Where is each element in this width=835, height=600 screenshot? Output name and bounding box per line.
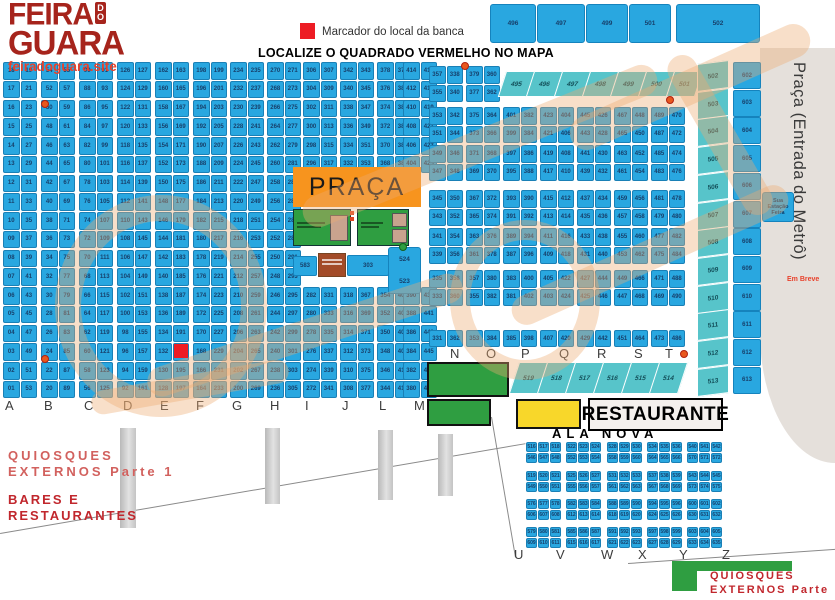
stall-cell[interactable]: 216 <box>230 231 247 249</box>
stall-cell[interactable]: 541 <box>699 442 710 452</box>
stall-cell[interactable]: 227 <box>211 325 228 343</box>
stall-cell[interactable]: 577 <box>538 499 549 509</box>
stall-cell[interactable]: 159 <box>135 362 152 380</box>
stall-cell[interactable]: 565 <box>659 453 670 463</box>
stall-cell[interactable]: 605 <box>711 527 722 537</box>
stall-cell[interactable]: 08 <box>3 250 20 268</box>
stall-cell[interactable]: 341 <box>321 381 338 399</box>
stall-cell[interactable]: 339 <box>321 362 338 380</box>
stall-cell[interactable]: 353 <box>466 330 483 347</box>
stall-cell[interactable]: 16 <box>3 100 20 118</box>
stall-cell[interactable]: 513 <box>697 365 729 397</box>
stall-cell[interactable]: 276 <box>303 343 320 361</box>
stall-cell[interactable]: 98 <box>117 325 134 343</box>
stall-cell[interactable]: 157 <box>135 343 152 361</box>
stall-cell[interactable]: 615 <box>566 538 577 548</box>
stall-cell[interactable]: 258 <box>267 175 284 193</box>
stall-cell[interactable]: 414 <box>558 209 575 227</box>
stall-cell[interactable]: 03 <box>3 343 20 361</box>
stall-cell[interactable]: 114 <box>117 175 134 193</box>
stall-cell[interactable]: 410 <box>403 100 420 118</box>
stall-cell[interactable]: 451 <box>614 330 631 347</box>
stall-cell[interactable]: 386 <box>521 145 538 163</box>
stall-cell[interactable]: 505 <box>697 143 729 175</box>
stall-cell[interactable]: 406 <box>403 137 420 155</box>
stall-cell[interactable]: 468 <box>632 289 649 307</box>
stall-cell[interactable]: 180 <box>193 231 210 249</box>
stall-cell[interactable]: 601 <box>699 499 710 509</box>
stall-cell[interactable]: 263 <box>248 325 265 343</box>
stall-cell[interactable]: 611 <box>733 311 761 338</box>
stall-cell[interactable]: 351 <box>429 126 446 144</box>
stall-cell[interactable]: 152 <box>155 156 172 174</box>
stall-cell[interactable]: 412 <box>558 190 575 208</box>
stall-cell[interactable]: 199 <box>211 62 228 80</box>
stall-cell[interactable]: 368 <box>484 145 501 163</box>
stall-cell[interactable]: 584 <box>590 499 601 509</box>
stall-cell[interactable]: 343 <box>429 209 446 227</box>
stall-cell[interactable]: 299 <box>285 325 302 343</box>
stall-cell[interactable]: 64 <box>79 306 96 324</box>
stall-cell[interactable]: 207 <box>211 137 228 155</box>
stall-cell[interactable]: 490 <box>669 289 686 307</box>
stall-cell[interactable]: 235 <box>248 62 265 80</box>
stall-cell[interactable]: 200 <box>230 381 247 399</box>
stall-cell[interactable]: 400 <box>521 270 538 288</box>
stall-cell[interactable]: 376 <box>377 81 394 99</box>
stall-cell[interactable]: 111 <box>97 250 114 268</box>
stall-cell[interactable]: 441 <box>577 145 594 163</box>
stall-cell[interactable]: 68 <box>79 268 96 286</box>
stall-cell[interactable]: 478 <box>669 190 686 208</box>
stall-cell[interactable]: 382 <box>484 289 501 307</box>
stall-cell[interactable]: 628 <box>659 538 670 548</box>
stall-cell[interactable]: 65 <box>59 156 76 174</box>
stall-cell[interactable]: 138 <box>155 287 172 305</box>
stall-cell[interactable]: 539 <box>671 471 682 481</box>
stall-cell[interactable]: 351 <box>358 137 375 155</box>
stall-cell[interactable]: 25 <box>21 118 38 136</box>
stall-cell[interactable]: 558 <box>607 453 618 463</box>
stall-cell[interactable]: 277 <box>285 118 302 136</box>
stall-cell[interactable]: 144 <box>155 231 172 249</box>
stall-cell[interactable]: 602 <box>733 62 761 89</box>
stall-cell[interactable]: 474 <box>669 145 686 163</box>
stall-cell[interactable]: 46 <box>41 137 58 155</box>
stall-cell[interactable]: 409 <box>540 247 557 265</box>
stall-cell[interactable]: 519 <box>526 471 537 481</box>
stall-cell[interactable]: 634 <box>699 538 710 548</box>
stall-cell[interactable]: 145 <box>135 231 152 249</box>
stall-cell[interactable]: 566 <box>671 453 682 463</box>
stall-cell[interactable]: 440 <box>595 247 612 265</box>
stall-cell[interactable]: 229 <box>211 343 228 361</box>
stall-cell[interactable]: 189 <box>173 306 190 324</box>
stall-cell[interactable]: 437 <box>577 190 594 208</box>
stall-cell[interactable]: 357 <box>466 270 483 288</box>
stall-cell[interactable]: 408 <box>558 145 575 163</box>
stall-cell[interactable]: 609 <box>526 538 537 548</box>
stall-cell[interactable]: 591 <box>607 527 618 537</box>
stall-cell[interactable]: 473 <box>651 330 668 347</box>
stall-cell[interactable]: 483 <box>651 164 668 182</box>
stall-cell[interactable]: 208 <box>230 306 247 324</box>
stall-cell[interactable]: 125 <box>97 381 114 399</box>
stall-cell[interactable]: 75 <box>59 250 76 268</box>
stall-cell[interactable]: 185 <box>173 268 190 286</box>
stall-cell[interactable]: 164 <box>193 381 210 399</box>
stall-cell[interactable]: 624 <box>647 510 658 520</box>
stall-cell[interactable]: 613 <box>733 367 761 394</box>
stall-cell[interactable]: 82 <box>79 137 96 155</box>
stall-cell[interactable]: 49 <box>21 343 38 361</box>
stall-cell[interactable]: 308 <box>340 381 357 399</box>
stall-cell[interactable]: 397 <box>503 145 520 163</box>
stall-cell[interactable]: 552 <box>566 453 577 463</box>
stall-cell[interactable]: 107 <box>97 212 114 230</box>
stall-cell[interactable]: 301 <box>285 343 302 361</box>
stall-cell[interactable]: 195 <box>173 362 190 380</box>
stall-cell[interactable]: 07 <box>3 268 20 286</box>
stall-cell[interactable]: 304 <box>303 81 320 99</box>
stall-cell[interactable]: 605 <box>733 145 761 172</box>
stall-cell[interactable]: 113 <box>97 268 114 286</box>
stall-cell[interactable]: 307 <box>321 62 338 80</box>
stall-cell[interactable]: 596 <box>671 499 682 509</box>
stall-cell[interactable]: 607 <box>538 510 549 520</box>
stall-cell[interactable]: 349 <box>429 145 446 163</box>
stall-cell[interactable]: 575 <box>711 482 722 492</box>
stall-cell[interactable]: 394 <box>521 228 538 246</box>
stall-cell[interactable]: 297 <box>285 306 302 324</box>
stall-cell[interactable]: 149 <box>135 268 152 286</box>
stall-cell[interactable]: 390 <box>521 190 538 208</box>
stall-cell[interactable]: 408 <box>403 118 420 136</box>
stall-cell[interactable]: 608 <box>550 510 561 520</box>
stall-cell[interactable]: 600 <box>687 499 698 509</box>
stall-cell[interactable]: 178 <box>193 250 210 268</box>
stall-cell[interactable]: 346 <box>447 145 464 163</box>
stall-cell[interactable]: 352 <box>377 306 394 324</box>
stall-cell[interactable]: 300 <box>303 118 320 136</box>
stall-cell[interactable]: 100 <box>117 306 134 324</box>
stall-cell[interactable]: 382 <box>403 362 420 380</box>
stall-cell[interactable]: 470 <box>669 107 686 125</box>
stall-cell[interactable]: 580 <box>538 527 549 537</box>
stall-cell[interactable]: 160 <box>155 81 172 99</box>
stall-cell[interactable]: 385 <box>503 330 520 347</box>
stall-cell[interactable]: 295 <box>285 287 302 305</box>
stall-cell[interactable]: 236 <box>267 381 284 399</box>
stall-cell[interactable]: 367 <box>358 287 375 305</box>
stall-cell[interactable]: 384 <box>484 330 501 347</box>
stall-cell[interactable]: 338 <box>340 100 357 118</box>
stall-cell[interactable]: 154 <box>155 137 172 155</box>
stall-cell[interactable]: 69 <box>59 193 76 211</box>
stall-cell[interactable]: 33 <box>21 193 38 211</box>
stall-cell[interactable]: 310 <box>340 362 357 380</box>
stall-cell[interactable]: 431 <box>577 247 594 265</box>
stall-cell[interactable]: 233 <box>211 381 228 399</box>
stall-cell[interactable]: 551 <box>550 482 561 492</box>
stall-cell[interactable]: 188 <box>193 156 210 174</box>
stall-cell[interactable]: 386 <box>403 325 420 343</box>
stall-cell[interactable]: 543 <box>687 471 698 481</box>
stall-cell[interactable]: 224 <box>230 156 247 174</box>
stall-cell[interactable]: 465 <box>614 126 631 144</box>
stall-cell[interactable]: 508 <box>697 226 729 258</box>
stall-cell[interactable]: 458 <box>632 209 649 227</box>
stall-cell[interactable]: 36 <box>41 231 58 249</box>
stall-cell[interactable]: 197 <box>173 381 190 399</box>
stall-cell[interactable]: 529 <box>619 442 630 452</box>
stall-cell[interactable]: 582 <box>566 499 577 509</box>
stall-cell[interactable]: 378 <box>484 247 501 265</box>
stall-cell[interactable]: 81 <box>59 306 76 324</box>
stall-cell[interactable]: 89 <box>59 381 76 399</box>
stall-cell[interactable]: 198 <box>193 62 210 80</box>
stall-cell[interactable]: 395 <box>503 164 520 182</box>
stall-cell[interactable]: 487 <box>651 126 668 144</box>
stall-cell[interactable]: 562 <box>619 482 630 492</box>
stall-cell[interactable]: 342 <box>340 62 357 80</box>
stall-cell[interactable]: 353 <box>429 107 446 125</box>
stall-cell[interactable]: 417 <box>540 164 557 182</box>
stall-cell[interactable]: 616 <box>578 538 589 548</box>
stall-cell[interactable]: 425 <box>577 289 594 307</box>
stall-cell[interactable]: 250 <box>267 250 284 268</box>
stall-cell[interactable]: 371 <box>466 145 483 163</box>
stall-cell[interactable]: 196 <box>193 81 210 99</box>
stall-cell[interactable]: 635 <box>711 538 722 548</box>
stall-cell[interactable]: 223 <box>211 287 228 305</box>
stall-cell[interactable]: 561 <box>607 482 618 492</box>
stall-cell[interactable]: 365 <box>466 209 483 227</box>
stall-cell[interactable]: 217 <box>211 231 228 249</box>
stall-cell[interactable]: 550 <box>538 482 549 492</box>
stall-cell[interactable]: 434 <box>595 190 612 208</box>
stall-cell[interactable]: 333 <box>429 289 446 307</box>
stall-cell[interactable]: 31 <box>21 175 38 193</box>
stall-cell[interactable]: 124 <box>117 81 134 99</box>
stall-cell[interactable]: 534 <box>647 442 658 452</box>
stall-cell[interactable]: 590 <box>631 499 642 509</box>
stall-cell[interactable]: 535 <box>659 442 670 452</box>
stall-cell[interactable]: 597 <box>647 527 658 537</box>
stall-cell[interactable]: 218 <box>230 212 247 230</box>
stall-cell[interactable]: 471 <box>651 270 668 288</box>
stall-cell[interactable]: 246 <box>267 287 284 305</box>
stall-cell[interactable]: 150 <box>155 175 172 193</box>
stall-cell[interactable]: 110 <box>117 212 134 230</box>
stall-cell[interactable]: 435 <box>577 209 594 227</box>
stall-cell[interactable]: 272 <box>303 381 320 399</box>
stall-cell[interactable]: 585 <box>566 527 577 537</box>
stall-cell[interactable]: 314 <box>340 325 357 343</box>
stall-cell[interactable]: 28 <box>41 306 58 324</box>
stall-cell[interactable]: 146 <box>155 212 172 230</box>
stall-cell[interactable]: 350 <box>377 325 394 343</box>
stall-cell[interactable]: 350 <box>447 190 464 208</box>
stall-cell[interactable]: 430 <box>595 145 612 163</box>
stall-cell[interactable]: 559 <box>619 453 630 463</box>
stall-cell[interactable]: 411 <box>540 228 557 246</box>
stall-cell[interactable]: 357 <box>429 66 446 84</box>
stall-cell[interactable]: 344 <box>447 126 464 144</box>
stall-cell[interactable]: 40 <box>41 193 58 211</box>
stall-cell[interactable]: 599 <box>671 527 682 537</box>
stall-cell[interactable]: 521 <box>550 471 561 481</box>
stall-cell[interactable]: 433 <box>577 228 594 246</box>
stall-cell[interactable]: 469 <box>651 289 668 307</box>
stall-cell[interactable]: 528 <box>607 442 618 452</box>
stall-cell[interactable]: 15 <box>3 118 20 136</box>
stall-cell[interactable]: 432 <box>595 164 612 182</box>
stall-cell[interactable]: 260 <box>267 156 284 174</box>
stall-cell[interactable]: 106 <box>117 250 134 268</box>
stall-cell[interactable]: 459 <box>614 190 631 208</box>
stall-cell[interactable]: 179 <box>173 212 190 230</box>
stall-cell[interactable]: 523 <box>578 442 589 452</box>
stall-cell[interactable]: 384 <box>403 343 420 361</box>
stall-cell[interactable]: 161 <box>135 381 152 399</box>
stall-cell[interactable]: 248 <box>267 268 284 286</box>
stall-cell[interactable]: 77 <box>59 268 76 286</box>
stall-cell[interactable]: 56 <box>79 381 96 399</box>
stall-cell[interactable]: 211 <box>211 175 228 193</box>
stall-cell[interactable]: 516 <box>526 442 537 452</box>
stall-cell[interactable]: 456 <box>632 190 649 208</box>
stall-cell[interactable]: 525 <box>566 471 577 481</box>
stall-cell[interactable]: 617 <box>590 538 601 548</box>
stall-cell[interactable]: 372 <box>377 118 394 136</box>
stall-cell[interactable]: 04 <box>3 325 20 343</box>
stall-cell[interactable]: 482 <box>669 228 686 246</box>
stall-cell[interactable]: 462 <box>632 247 649 265</box>
stall-cell[interactable]: 455 <box>614 228 631 246</box>
stall-cell[interactable]: 463 <box>614 145 631 163</box>
stall-cell[interactable]: 419 <box>540 145 557 163</box>
stall-cell[interactable]: 203 <box>211 100 228 118</box>
stall-cell[interactable]: 619 <box>619 510 630 520</box>
stall-cell[interactable]: 414 <box>403 62 420 80</box>
stall-cell[interactable]: 589 <box>619 499 630 509</box>
stall-cell[interactable]: 241 <box>248 118 265 136</box>
stall-cell[interactable]: 109 <box>97 231 114 249</box>
stall-cell[interactable]: 607 <box>733 201 761 228</box>
stall-cell[interactable]: 172 <box>193 306 210 324</box>
stall-cell[interactable]: 37 <box>21 231 38 249</box>
stall-cell[interactable]: 132 <box>155 343 172 361</box>
stall-cell[interactable]: 361 <box>466 247 483 265</box>
stall-cell[interactable]: 29 <box>21 156 38 174</box>
stall-cell[interactable]: 38 <box>41 212 58 230</box>
stall-cell[interactable]: 429 <box>577 330 594 347</box>
stall-cell[interactable]: 360 <box>447 289 464 307</box>
stall-cell[interactable]: 573 <box>687 482 698 492</box>
stall-cell[interactable]: 542 <box>711 442 722 452</box>
stall-cell[interactable]: 362 <box>447 330 464 347</box>
stall-cell[interactable]: 73 <box>59 231 76 249</box>
stall-cell[interactable]: 249 <box>248 193 265 211</box>
stall-cell[interactable]: 448 <box>632 107 649 125</box>
stall-cell[interactable]: 374 <box>484 209 501 227</box>
stall-cell[interactable]: 222 <box>230 175 247 193</box>
stall-cell[interactable]: 105 <box>97 193 114 211</box>
stall-cell[interactable]: 133 <box>135 118 152 136</box>
stall-cell[interactable]: 518 <box>550 442 561 452</box>
stall-cell[interactable]: 170 <box>193 325 210 343</box>
stall-cell[interactable]: 389 <box>503 228 520 246</box>
stall-cell[interactable]: 349 <box>358 118 375 136</box>
stall-cell[interactable]: 334 <box>340 137 357 155</box>
stall-cell[interactable]: 598 <box>659 527 670 537</box>
stall-cell[interactable]: 61 <box>59 118 76 136</box>
stall-cell[interactable]: 531 <box>607 471 618 481</box>
stall-cell[interactable]: 444 <box>595 270 612 288</box>
stall-cell[interactable]: 502 <box>676 4 760 43</box>
stall-cell[interactable]: 344 <box>377 381 394 399</box>
stall-cell[interactable]: 614 <box>590 510 601 520</box>
stall-cell[interactable]: 376 <box>484 228 501 246</box>
stall-cell[interactable]: 348 <box>377 343 394 361</box>
stall-cell[interactable]: 30 <box>41 287 58 305</box>
stall-cell[interactable]: 620 <box>631 510 642 520</box>
stall-cell[interactable]: 112 <box>117 193 134 211</box>
stall-cell[interactable]: 169 <box>173 118 190 136</box>
stall-cell[interactable]: 441 <box>421 306 438 324</box>
stall-cell[interactable]: 609 <box>733 256 761 283</box>
stall-cell[interactable]: 374 <box>377 100 394 118</box>
stall-cell[interactable]: 489 <box>651 107 668 125</box>
stall-cell[interactable]: 412 <box>403 81 420 99</box>
stall-cell[interactable]: 72 <box>79 231 96 249</box>
stall-cell[interactable]: 123 <box>97 362 114 380</box>
stall-cell[interactable]: 537 <box>647 471 658 481</box>
stall-cell[interactable]: 143 <box>135 212 152 230</box>
stall-cell[interactable]: 338 <box>447 66 464 84</box>
stall-cell[interactable]: 343 <box>358 62 375 80</box>
stall-cell[interactable]: 255 <box>248 250 265 268</box>
stall-cell[interactable]: 103 <box>97 175 114 193</box>
stall-cell[interactable]: 567 <box>647 482 658 492</box>
stall-cell[interactable]: 484 <box>669 247 686 265</box>
stall-cell[interactable]: 588 <box>607 499 618 509</box>
stall-cell[interactable]: 256 <box>267 193 284 211</box>
stall-cell[interactable]: 506 <box>697 171 729 203</box>
stall-cell[interactable]: 443 <box>577 126 594 144</box>
stall-cell[interactable]: 34 <box>41 250 58 268</box>
stall-cell[interactable]: 436 <box>595 209 612 227</box>
stall-cell[interactable]: 67 <box>59 175 76 193</box>
stall-cell[interactable]: 625 <box>659 510 670 520</box>
stall-cell[interactable]: 626 <box>671 510 682 520</box>
stall-cell[interactable]: 608 <box>733 228 761 255</box>
stall-cell[interactable]: 606 <box>526 510 537 520</box>
stall-cell[interactable]: 399 <box>503 126 520 144</box>
stall-cell[interactable]: 278 <box>303 325 320 343</box>
stall-cell[interactable]: 313 <box>321 118 338 136</box>
stall-cell[interactable]: 80 <box>79 156 96 174</box>
stall-cell[interactable]: 279 <box>285 137 302 155</box>
stall-cell[interactable]: 460 <box>632 228 649 246</box>
stall-cell[interactable]: 305 <box>285 381 302 399</box>
stall-cell[interactable]: 388 <box>403 306 420 324</box>
stall-cell[interactable]: 479 <box>651 209 668 227</box>
stall-cell[interactable]: 612 <box>733 339 761 366</box>
stall-cell[interactable]: 266 <box>267 100 284 118</box>
stall-cell[interactable]: 576 <box>526 499 537 509</box>
